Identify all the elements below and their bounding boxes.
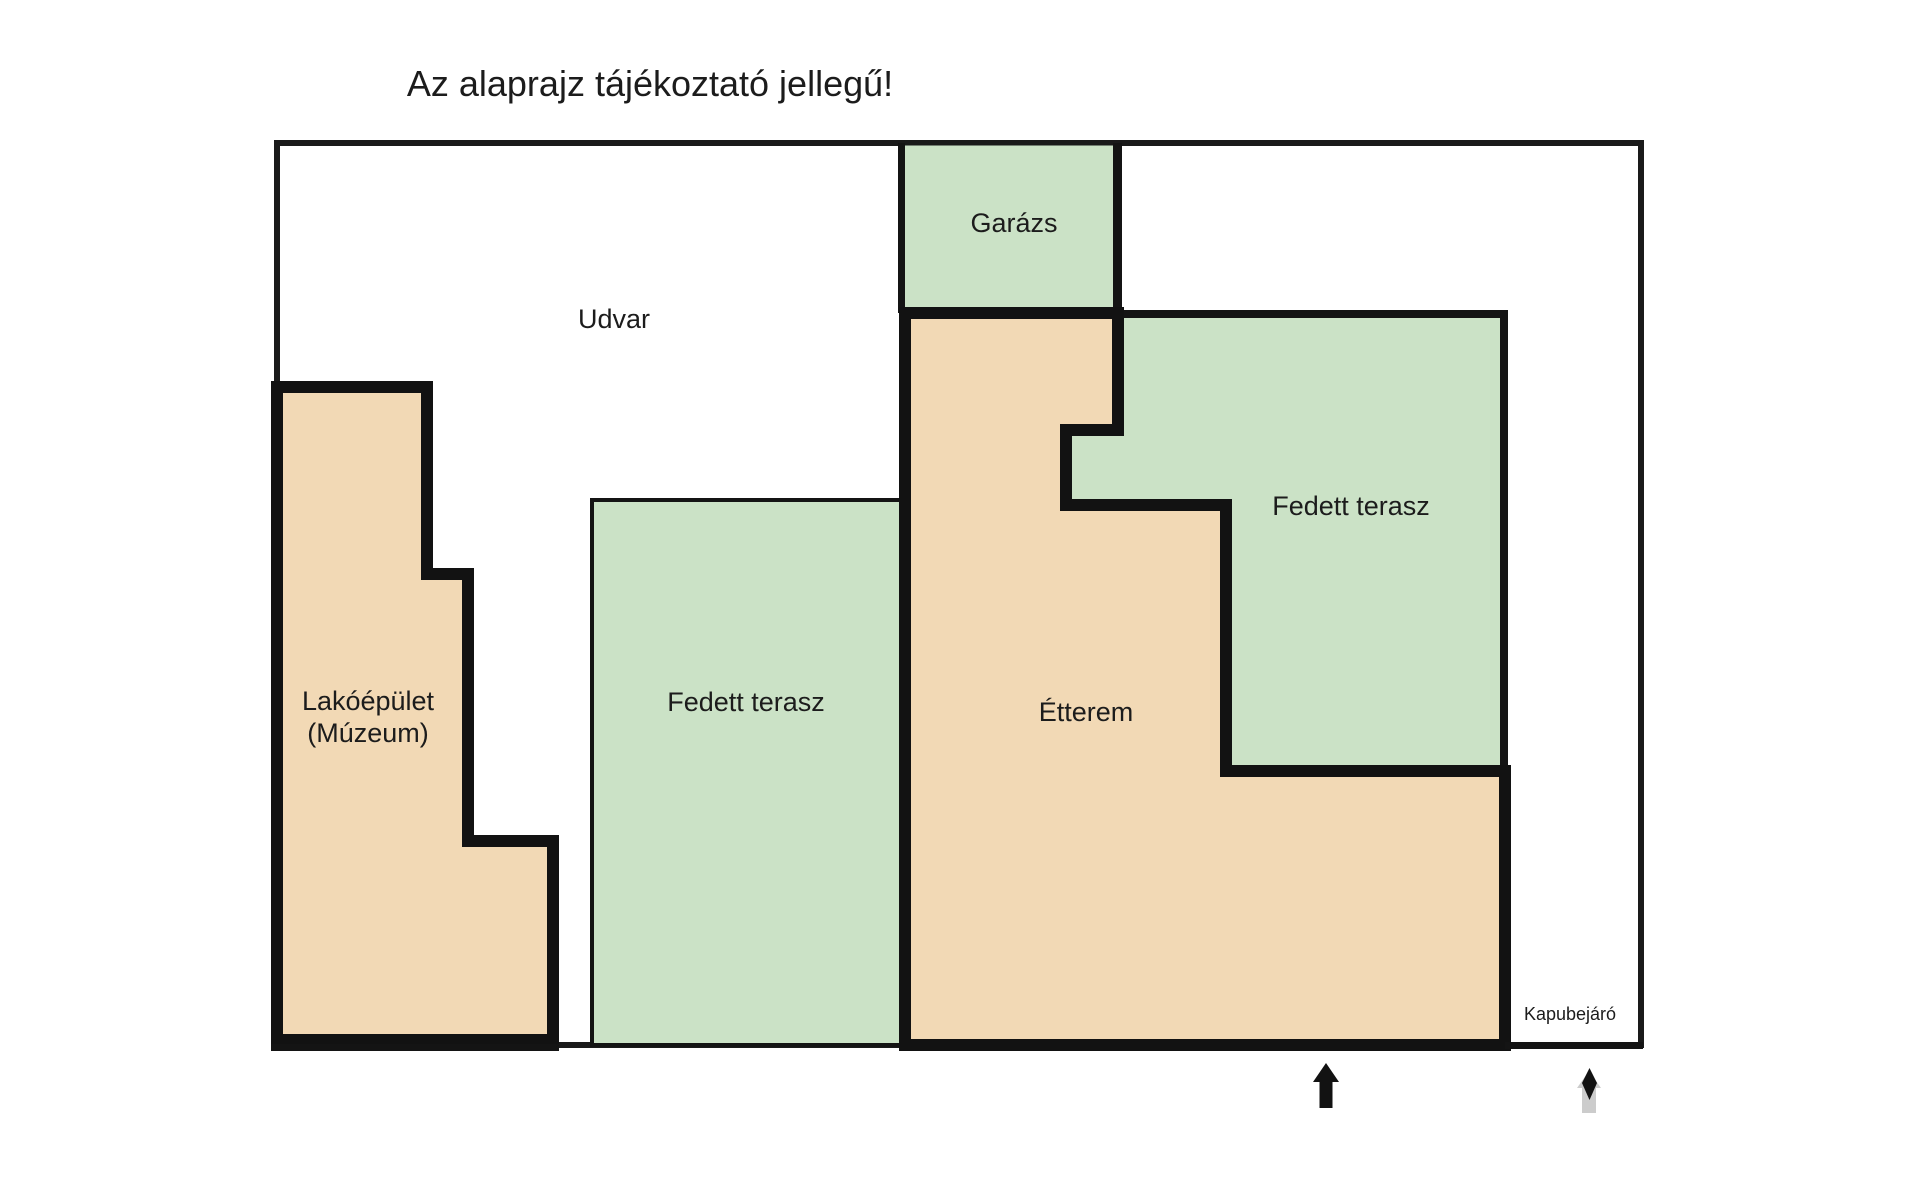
svg-text:Étterem: Étterem bbox=[1039, 697, 1134, 727]
svg-text:Udvar: Udvar bbox=[578, 304, 650, 334]
svg-text:Kapubejáró: Kapubejáró bbox=[1524, 1004, 1616, 1024]
svg-text:Fedett terasz: Fedett terasz bbox=[667, 687, 825, 717]
svg-text:(Múzeum): (Múzeum) bbox=[307, 718, 429, 748]
svg-text:Fedett terasz: Fedett terasz bbox=[1272, 491, 1430, 521]
svg-text:Garázs: Garázs bbox=[970, 208, 1057, 238]
svg-text:Lakóépület: Lakóépület bbox=[302, 686, 435, 716]
svg-text:Az alaprajz tájékoztató jelleg: Az alaprajz tájékoztató jellegű! bbox=[407, 63, 893, 104]
